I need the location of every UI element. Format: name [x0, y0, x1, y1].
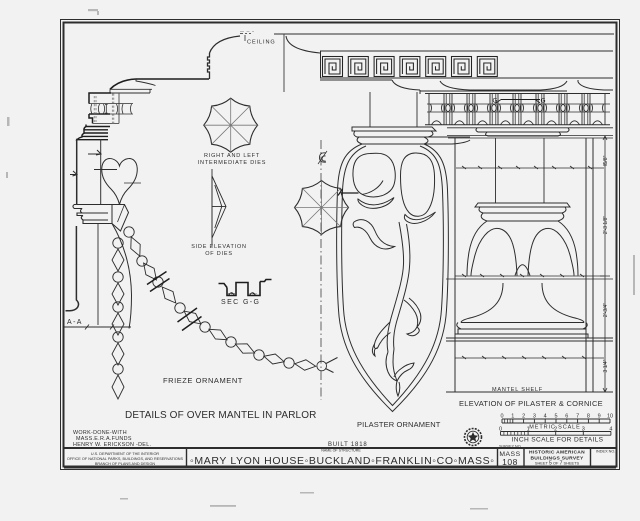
svg-text:INCH SCALE FOR DETAILS: INCH SCALE FOR DETAILS	[512, 437, 604, 444]
svg-text:OFFICE OF NATIONAL PARKS, BUIL: OFFICE OF NATIONAL PARKS, BUILDINGS, AND…	[67, 457, 184, 461]
svg-text:G: G	[541, 98, 546, 105]
svg-text:2'-3 1/8": 2'-3 1/8"	[603, 216, 609, 235]
svg-text:INTERMEDIATE DIES: INTERMEDIATE DIES	[198, 160, 267, 166]
svg-text:ELEVATION OF PILASTER & CORNIC: ELEVATION OF PILASTER & CORNICE	[459, 399, 603, 408]
svg-text:◦MARY LYON HOUSE◦BUCKLAND◦FRAN: ◦MARY LYON HOUSE◦BUCKLAND◦FRANKLIN◦CO◦MA…	[190, 455, 495, 467]
svg-text:FRIEZE ORNAMENT: FRIEZE ORNAMENT	[163, 376, 243, 385]
svg-text:108: 108	[502, 457, 518, 467]
svg-text:INDEX NO.: INDEX NO.	[596, 450, 615, 454]
svg-text:MANTEL SHELF: MANTEL SHELF	[492, 387, 543, 393]
svg-text:DETAILS OF OVER MANTEL IN PARL: DETAILS OF OVER MANTEL IN PARLOR	[125, 410, 316, 421]
svg-text:G: G	[493, 98, 498, 105]
svg-text:SURVEY NO.: SURVEY NO.	[499, 445, 522, 449]
svg-text:A-A: A-A	[67, 319, 83, 326]
svg-text:3 1/4": 3 1/4"	[603, 359, 609, 372]
svg-text:U.S. DEPARTMENT OF THE INTERIO: U.S. DEPARTMENT OF THE INTERIOR	[91, 452, 160, 456]
svg-text:SIDE ELEVATION: SIDE ELEVATION	[191, 244, 247, 250]
svg-text:CEILING: CEILING	[247, 40, 276, 46]
svg-text:NAME OF STRUCTURE: NAME OF STRUCTURE	[321, 449, 361, 453]
svg-text:BRANCH OF PLANS AND DESIGN: BRANCH OF PLANS AND DESIGN	[95, 462, 156, 466]
svg-text:2'-3/4": 2'-3/4"	[603, 303, 609, 317]
svg-text:OF DIES: OF DIES	[205, 251, 233, 257]
svg-text:5/8": 5/8"	[603, 155, 609, 164]
svg-text:RIGHT AND LEFT: RIGHT AND LEFT	[204, 153, 260, 159]
svg-text:HISTORIC AMERICAN: HISTORIC AMERICAN	[529, 450, 585, 456]
svg-text:PILASTER ORNAMENT: PILASTER ORNAMENT	[357, 420, 441, 429]
svg-text:SEC G-G: SEC G-G	[221, 299, 260, 306]
